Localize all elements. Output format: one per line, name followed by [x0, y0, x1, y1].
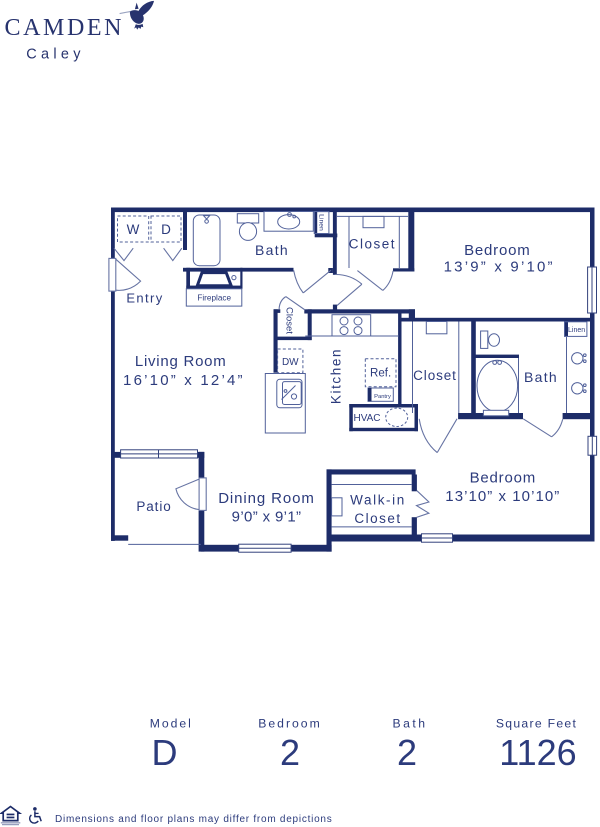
svg-text:Closet: Closet [413, 368, 457, 383]
svg-text:13’10” x 10’10”: 13’10” x 10’10” [445, 488, 560, 505]
svg-text:1126: 1126 [499, 732, 576, 773]
svg-text:DW: DW [282, 357, 299, 368]
svg-text:Walk-in: Walk-in [350, 492, 406, 507]
svg-text:Linen: Linen [318, 214, 325, 231]
svg-text:Caley: Caley [26, 47, 85, 63]
svg-text:2: 2 [397, 732, 417, 773]
svg-text:Kitchen: Kitchen [328, 348, 343, 404]
svg-text:Linen: Linen [568, 327, 585, 334]
svg-text:Bath: Bath [524, 369, 558, 385]
svg-text:Model: Model [150, 717, 193, 731]
svg-text:Closet: Closet [349, 237, 396, 252]
svg-text:Closet: Closet [354, 511, 401, 526]
svg-text:Dining Room: Dining Room [218, 490, 315, 507]
svg-text:Bedroom: Bedroom [258, 717, 321, 731]
svg-text:2: 2 [280, 732, 300, 773]
svg-text:HVAC: HVAC [353, 413, 380, 424]
svg-text:Bath: Bath [255, 242, 289, 258]
svg-text:Living Room: Living Room [135, 353, 227, 370]
svg-text:16’10” x 12’4”: 16’10” x 12’4” [123, 372, 245, 389]
svg-text:Bedroom: Bedroom [470, 470, 536, 487]
svg-text:13’9” x 9’10”: 13’9” x 9’10” [444, 259, 555, 276]
svg-text:Square Feet: Square Feet [496, 717, 577, 731]
svg-text:9’0” x 9’1”: 9’0” x 9’1” [232, 508, 302, 525]
svg-text:Bedroom: Bedroom [464, 242, 530, 259]
svg-text:Entry: Entry [126, 291, 163, 306]
svg-text:Closet: Closet [283, 307, 294, 334]
svg-text:D: D [152, 732, 178, 773]
svg-text:W: W [127, 222, 140, 237]
svg-text:CAMDEN: CAMDEN [5, 15, 125, 41]
svg-text:Dimensions and floor plans may: Dimensions and floor plans may differ fr… [55, 814, 332, 825]
svg-text:Pantry: Pantry [374, 394, 391, 400]
svg-text:Ref.: Ref. [370, 367, 391, 379]
svg-text:Fireplace: Fireplace [197, 294, 231, 303]
svg-text:Patio: Patio [136, 499, 171, 514]
svg-text:D: D [161, 222, 171, 237]
svg-text:Bath: Bath [392, 717, 427, 731]
